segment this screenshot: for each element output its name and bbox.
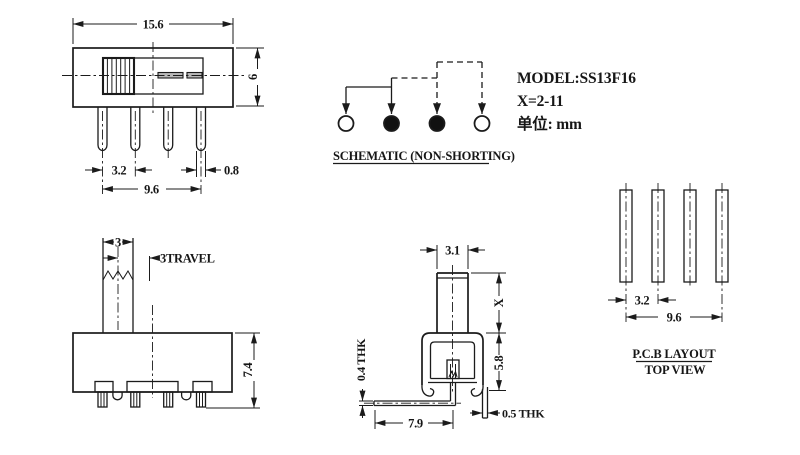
pcb-layout: 3.2 9.6 P.C.B LAYOUT TOP VIEW bbox=[608, 183, 728, 377]
technical-drawing-page: 15.6 6 3.2 0.8 9.6 bbox=[0, 0, 800, 450]
side-pins bbox=[98, 392, 206, 407]
title-block: MODEL:SS13F16 X=2-11 单位: mm bbox=[517, 70, 636, 133]
dim-pin-pitch-text: 3.2 bbox=[112, 164, 127, 178]
dim-front-width: 15.6 bbox=[73, 18, 233, 45]
front-view-body bbox=[62, 42, 244, 194]
dim-side-height: 7.4 bbox=[206, 333, 260, 408]
dim-pin-span-text: 9.6 bbox=[144, 183, 159, 197]
units-note: 单位: mm bbox=[517, 114, 582, 133]
dim-plate-thickness-text: 0.4 THK bbox=[354, 338, 368, 381]
dim-knob-width-text: 3 bbox=[115, 236, 121, 250]
dim-terminal-thickness: 0.5 THK bbox=[470, 407, 545, 421]
section-body bbox=[364, 265, 488, 418]
dim-travel: 3TRAVEL bbox=[103, 252, 215, 282]
schematic-wiring bbox=[346, 62, 482, 114]
dim-front-height: 6 bbox=[236, 48, 264, 106]
side-terminal bbox=[483, 387, 488, 418]
section-view: 3.1 X 5.8 0.4 THK 7.9 bbox=[354, 244, 545, 431]
dim-front-width-text: 15.6 bbox=[143, 18, 164, 32]
terminal-3-filled-icon bbox=[430, 116, 445, 131]
dim-pin-width: 0.8 bbox=[181, 151, 239, 178]
terminal-4-open-icon bbox=[475, 116, 490, 131]
dim-plate-length-text: 7.9 bbox=[408, 417, 423, 431]
foot-left bbox=[422, 385, 434, 396]
x-range: X=2-11 bbox=[517, 93, 563, 110]
bent-terminal bbox=[364, 383, 461, 406]
dim-plate-thickness: 0.4 THK bbox=[354, 338, 373, 418]
dim-pad-pitch: 3.2 bbox=[608, 294, 676, 308]
foot-right bbox=[471, 385, 483, 396]
drawing-svg: 15.6 6 3.2 0.8 9.6 bbox=[0, 0, 800, 450]
terminal-1-open-icon bbox=[339, 116, 354, 131]
schematic-label: SCHEMATIC (NON-SHORTING) bbox=[333, 149, 515, 163]
side-view: 3 3TRAVEL 7.4 bbox=[73, 236, 260, 409]
dim-side-height-text: 7.4 bbox=[241, 362, 255, 378]
mount-notch-right bbox=[182, 392, 191, 400]
terminal-2-filled-icon bbox=[384, 116, 399, 131]
knob-hatch bbox=[107, 58, 129, 94]
mount-notch-left bbox=[113, 392, 122, 400]
dim-pin-width-text: 0.8 bbox=[224, 164, 239, 178]
dim-pin-pitch: 3.2 bbox=[85, 164, 152, 178]
dim-travel-text: 3TRAVEL bbox=[160, 252, 215, 266]
dim-front-height-text: 6 bbox=[246, 74, 260, 80]
dim-pad-pitch-text: 3.2 bbox=[635, 294, 650, 308]
pcb-layout-title: P.C.B LAYOUT bbox=[632, 347, 716, 361]
model-number: MODEL:SS13F16 bbox=[517, 70, 636, 87]
dim-pad-span: 9.6 bbox=[626, 311, 722, 325]
dim-plate-length: 7.9 bbox=[375, 410, 453, 431]
dim-pad-span-text: 9.6 bbox=[667, 311, 682, 325]
dim-knob-height-x: X bbox=[471, 273, 506, 333]
dim-knob-width: 3 bbox=[103, 236, 133, 250]
dim-body-height: 5.8 bbox=[489, 333, 506, 391]
dim-section-knob-width-text: 3.1 bbox=[445, 244, 460, 258]
dim-body-height-text: 5.8 bbox=[492, 356, 506, 371]
front-pins bbox=[98, 107, 206, 194]
dim-pin-span: 9.6 bbox=[103, 183, 202, 197]
dim-terminal-thickness-text: 0.5 THK bbox=[502, 407, 545, 421]
schematic: SCHEMATIC (NON-SHORTING) bbox=[333, 62, 515, 164]
dim-knob-height-text: X bbox=[492, 298, 506, 307]
front-view: 15.6 6 3.2 0.8 9.6 bbox=[62, 18, 264, 197]
pcb-layout-subtitle: TOP VIEW bbox=[645, 363, 707, 377]
